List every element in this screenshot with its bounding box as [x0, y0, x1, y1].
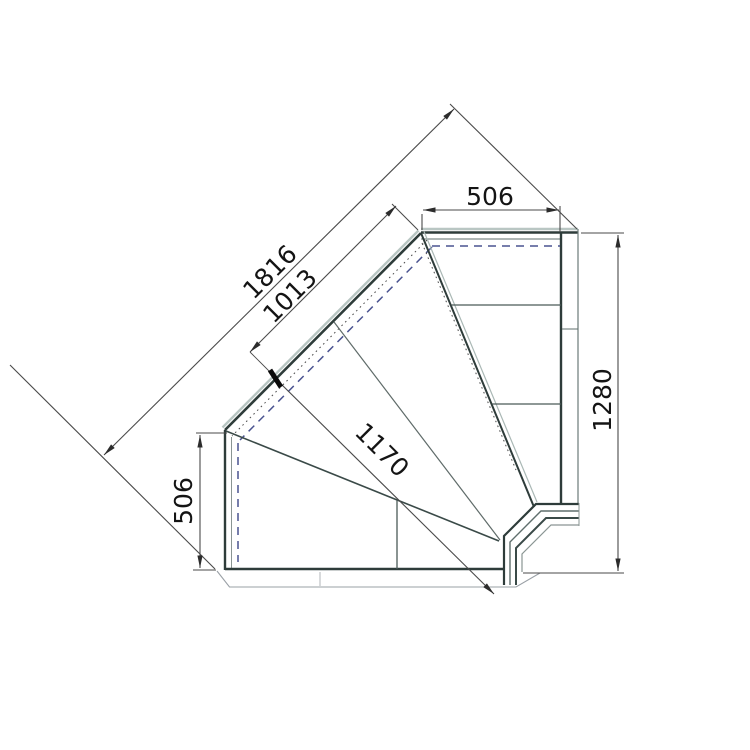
dimension-1170-front: [270, 370, 494, 594]
technical-drawing-page: 506 1816 1013 506 1280 1170: [0, 0, 750, 750]
corner-counter-plan-drawing: 506 1816 1013 506 1280 1170: [0, 0, 750, 750]
label-top-width: 506: [466, 182, 514, 211]
dimension-506-left: [193, 433, 227, 570]
label-right-height: 1280: [588, 368, 617, 432]
label-left-depth: 506: [169, 477, 198, 525]
label-front-diagonal: 1170: [349, 417, 414, 482]
dimension-1816-diagonal: [10, 104, 577, 569]
